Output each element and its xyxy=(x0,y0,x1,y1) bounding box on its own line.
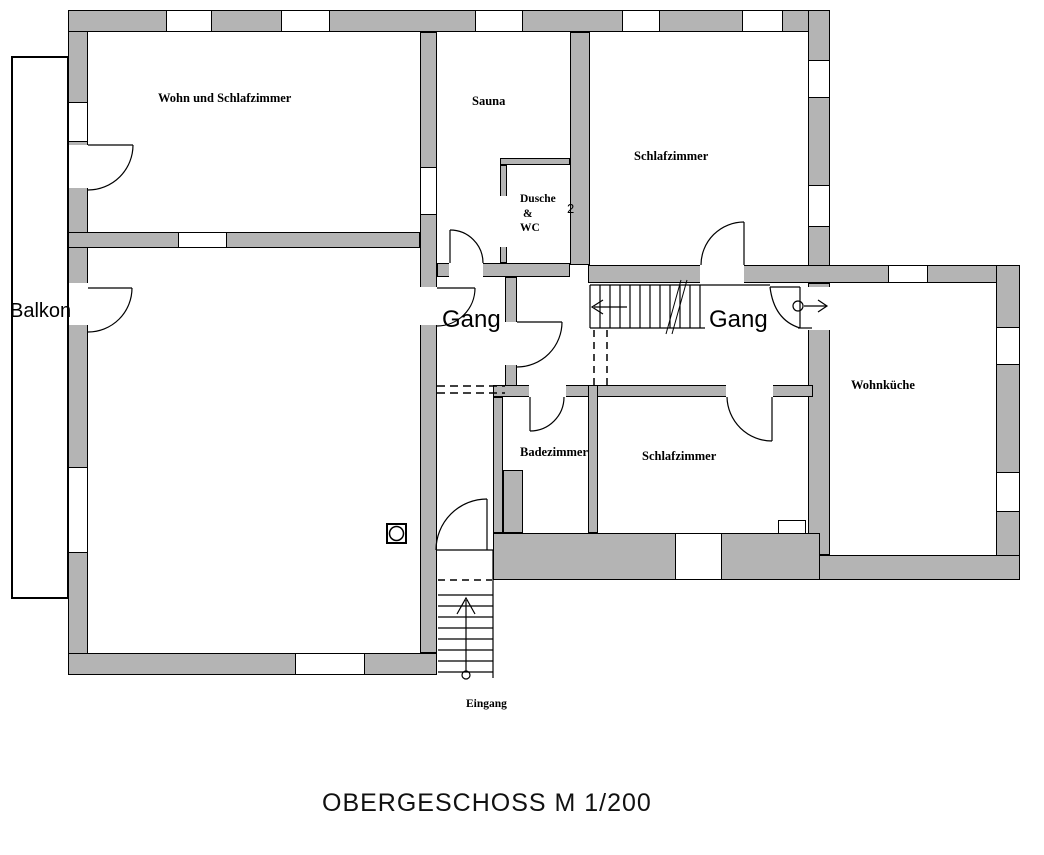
plan-linework xyxy=(0,0,1044,855)
door-swing-gang-corridor xyxy=(517,322,562,367)
label-badezimmer: Badezimmer xyxy=(520,445,588,460)
door-swing-sauna xyxy=(450,230,483,263)
floor-plan: Wohn und Schlafzimmer Sauna Dusche & WC … xyxy=(0,0,1044,855)
gang-step-dashes xyxy=(437,386,505,393)
door-swing-bedroom-bottom xyxy=(727,397,772,441)
label-schlafzimmer-bottom: Schlafzimmer xyxy=(642,449,716,464)
label-stair-number: 2 xyxy=(567,201,574,216)
door-swing-bathroom xyxy=(530,397,564,431)
label-gang-left: Gang xyxy=(442,306,501,334)
balcony-outline xyxy=(12,57,68,598)
door-swing-entrance xyxy=(436,499,487,550)
label-dusche-amp: & xyxy=(523,207,533,221)
label-dusche: Dusche xyxy=(520,192,556,206)
label-schlafzimmer-top: Schlafzimmer xyxy=(634,149,708,164)
door-swing-balcony-lower xyxy=(88,288,132,332)
label-gang-center: Gang xyxy=(709,306,768,334)
label-eingang: Eingang xyxy=(466,698,507,710)
label-wohnkueche: Wohnküche xyxy=(851,378,915,393)
door-swing-bedroom-top xyxy=(701,222,744,265)
door-swing-kitchen xyxy=(770,287,827,328)
label-balkon: Balkon xyxy=(10,300,71,323)
label-wc: WC xyxy=(520,221,540,235)
door-swing-balcony-upper xyxy=(88,145,133,190)
label-wohn-schlafzimmer: Wohn und Schlafzimmer xyxy=(158,91,291,106)
entrance-staircase xyxy=(437,550,493,679)
drawing-title: OBERGESCHOSS M 1/200 xyxy=(322,789,652,818)
label-sauna: Sauna xyxy=(472,94,505,109)
chimney-symbol xyxy=(387,524,406,543)
